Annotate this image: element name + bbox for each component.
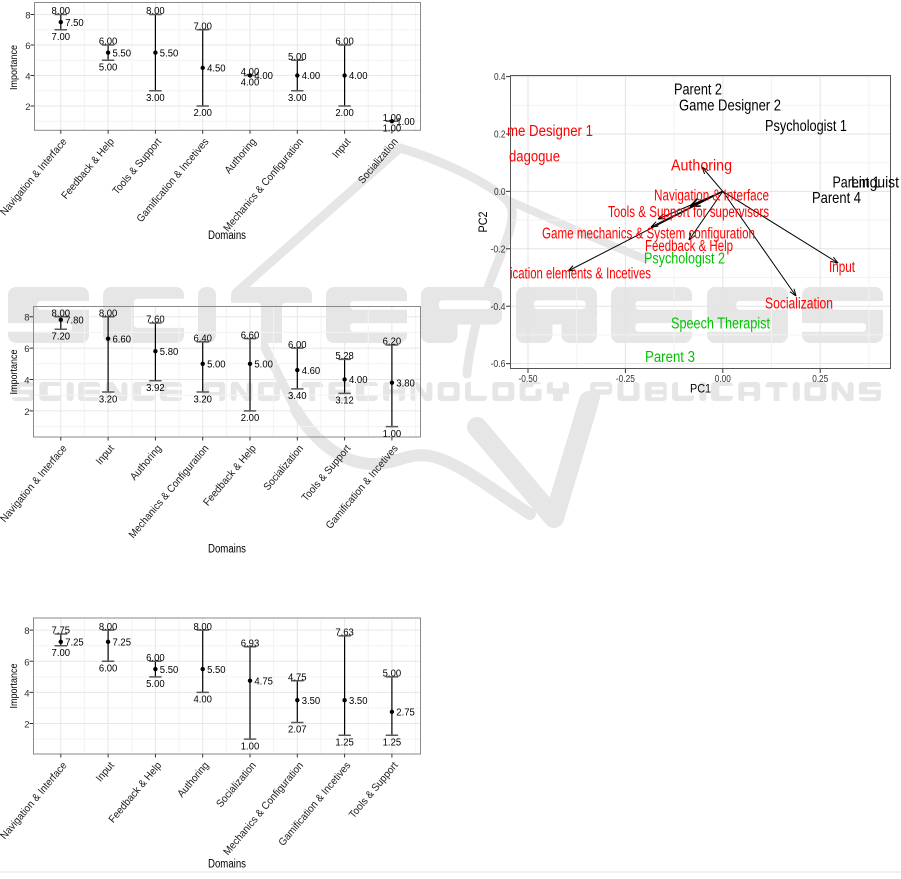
svg-text:7.25: 7.25 [65, 638, 84, 649]
svg-text:Parent 2: Parent 2 [674, 82, 722, 99]
svg-text:6: 6 [25, 41, 30, 52]
svg-text:4.00: 4.00 [254, 71, 273, 82]
svg-text:0.25: 0.25 [812, 374, 828, 385]
svg-text:5.00: 5.00 [288, 52, 307, 63]
svg-text:3.92: 3.92 [146, 383, 165, 394]
svg-text:PC1: PC1 [690, 384, 711, 396]
svg-text:1.00: 1.00 [241, 741, 260, 752]
svg-text:3.80: 3.80 [396, 378, 415, 389]
svg-text:-0.6: -0.6 [491, 359, 506, 370]
svg-text:2.00: 2.00 [193, 108, 212, 119]
svg-text:Game Designer 2: Game Designer 2 [679, 98, 781, 115]
svg-text:Tools & Support for supervisor: Tools & Support for supervisors [608, 204, 769, 221]
svg-text:-0.25: -0.25 [616, 374, 635, 385]
svg-text:3.12: 3.12 [335, 396, 354, 407]
svg-text:Parent 4: Parent 4 [812, 190, 861, 207]
svg-text:6.00: 6.00 [288, 340, 307, 351]
svg-text:Socialization: Socialization [765, 296, 833, 313]
svg-text:4.50: 4.50 [207, 64, 226, 75]
svg-text:5.50: 5.50 [207, 665, 226, 676]
svg-text:2.07: 2.07 [288, 725, 307, 736]
svg-text:7.75: 7.75 [52, 626, 71, 637]
svg-text:0.00: 0.00 [715, 374, 731, 385]
svg-text:4.00: 4.00 [302, 71, 321, 82]
svg-text:7.00: 7.00 [52, 32, 71, 43]
svg-text:5.28: 5.28 [335, 351, 354, 362]
svg-text:8: 8 [25, 11, 30, 22]
svg-text:7.50: 7.50 [65, 18, 84, 29]
svg-text:8.00: 8.00 [193, 622, 212, 633]
svg-text:3.40: 3.40 [288, 391, 307, 402]
svg-text:Authoring: Authoring [671, 158, 732, 175]
svg-text:Speech Therapist: Speech Therapist [671, 316, 771, 333]
svg-text:Domains: Domains [208, 544, 246, 556]
svg-text:8.00: 8.00 [99, 308, 118, 319]
svg-text:ication elements & Incetives: ication elements & Incetives [510, 266, 651, 283]
svg-text:Input: Input [829, 259, 856, 276]
svg-text:1.00: 1.00 [396, 117, 415, 128]
svg-text:4.00: 4.00 [193, 695, 212, 706]
svg-text:6.00: 6.00 [335, 37, 354, 48]
svg-text:0.2: 0.2 [494, 130, 506, 141]
svg-text:3.20: 3.20 [99, 394, 118, 405]
svg-text:6.60: 6.60 [113, 334, 132, 345]
svg-text:5.80: 5.80 [160, 347, 179, 358]
svg-text:5.00: 5.00 [207, 360, 226, 371]
svg-text:0.4: 0.4 [494, 72, 506, 83]
svg-text:3.50: 3.50 [349, 696, 368, 707]
svg-text:4: 4 [24, 688, 29, 699]
svg-text:6.00: 6.00 [99, 663, 118, 674]
svg-text:me Designer 1: me Designer 1 [507, 123, 593, 140]
svg-text:7.80: 7.80 [65, 316, 84, 327]
svg-text:2.00: 2.00 [335, 108, 354, 119]
svg-text:Importance: Importance [8, 663, 20, 708]
svg-text:7.00: 7.00 [193, 21, 212, 32]
svg-text:8.00: 8.00 [99, 622, 118, 633]
svg-text:7.00: 7.00 [52, 648, 71, 659]
svg-text:3.20: 3.20 [193, 394, 212, 405]
svg-text:1.00: 1.00 [383, 429, 402, 440]
svg-text:6: 6 [24, 344, 29, 355]
svg-text:1.25: 1.25 [335, 737, 354, 748]
svg-text:PC2: PC2 [478, 212, 490, 233]
svg-text:4.60: 4.60 [302, 366, 321, 377]
svg-text:2: 2 [25, 102, 30, 113]
svg-text:1.25: 1.25 [383, 737, 402, 748]
svg-text:2.00: 2.00 [241, 413, 260, 424]
svg-text:5.00: 5.00 [254, 360, 273, 371]
svg-text:7.20: 7.20 [52, 331, 71, 342]
svg-text:4.00: 4.00 [349, 71, 368, 82]
svg-text:Navigation & Interface: Navigation & Interface [654, 188, 769, 205]
svg-text:4: 4 [24, 376, 29, 387]
svg-text:5.50: 5.50 [113, 48, 132, 59]
svg-text:7.63: 7.63 [335, 628, 354, 639]
svg-text:7.60: 7.60 [146, 315, 165, 326]
svg-text:6.20: 6.20 [383, 337, 402, 348]
svg-text:8: 8 [24, 626, 29, 637]
svg-text:6.00: 6.00 [146, 653, 165, 664]
svg-text:dagogue: dagogue [509, 149, 560, 166]
svg-text:Domains: Domains [208, 859, 246, 871]
svg-text:2.75: 2.75 [396, 708, 415, 719]
svg-text:3.00: 3.00 [288, 93, 307, 104]
svg-text:6.00: 6.00 [99, 37, 118, 48]
svg-text:8.00: 8.00 [146, 6, 165, 17]
svg-text:5.00: 5.00 [146, 679, 165, 690]
svg-text:6.60: 6.60 [241, 330, 260, 341]
svg-text:4.00: 4.00 [349, 375, 368, 386]
svg-text:8.00: 8.00 [52, 6, 71, 17]
svg-text:3.00: 3.00 [146, 93, 165, 104]
svg-text:5.50: 5.50 [160, 48, 179, 59]
svg-text:8: 8 [24, 313, 29, 324]
svg-text:2: 2 [24, 720, 29, 731]
svg-text:4.75: 4.75 [254, 676, 273, 687]
svg-text:6: 6 [24, 657, 29, 668]
svg-text:4.75: 4.75 [288, 672, 307, 683]
svg-text:Importance: Importance [8, 349, 20, 394]
svg-text:0.0: 0.0 [494, 187, 506, 198]
svg-text:5.50: 5.50 [160, 665, 179, 676]
svg-text:4: 4 [25, 72, 30, 83]
svg-text:Domains: Domains [208, 230, 246, 242]
svg-text:-0.50: -0.50 [519, 374, 538, 385]
svg-text:6.40: 6.40 [193, 334, 212, 345]
svg-text:7.25: 7.25 [113, 638, 132, 649]
svg-text:Parent 3: Parent 3 [645, 349, 695, 366]
svg-text:-0.4: -0.4 [491, 302, 506, 313]
svg-text:-0.2: -0.2 [491, 244, 506, 255]
svg-text:6.93: 6.93 [241, 639, 260, 650]
svg-text:2: 2 [24, 407, 29, 418]
svg-text:5.00: 5.00 [99, 62, 118, 73]
svg-text:Importance: Importance [8, 45, 20, 90]
svg-text:Linguist: Linguist [851, 175, 900, 192]
svg-text:5.00: 5.00 [383, 669, 402, 680]
svg-text:Psychologist 1: Psychologist 1 [765, 118, 847, 135]
svg-text:3.50: 3.50 [302, 696, 321, 707]
svg-text:Psychologist 2: Psychologist 2 [644, 251, 725, 268]
